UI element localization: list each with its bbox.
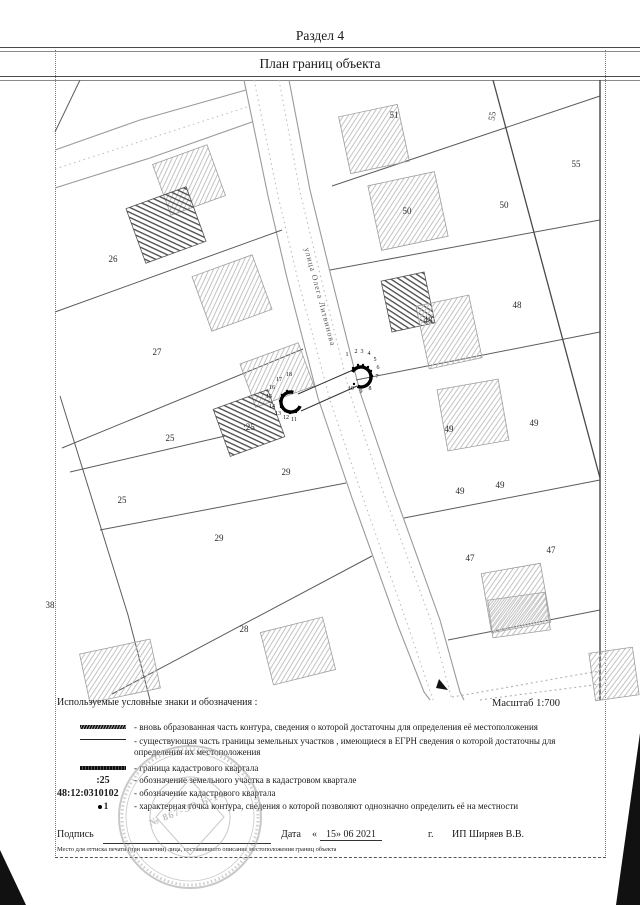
stamp-place-note: Место для оттиска печати (при наличии) л… — [57, 846, 336, 853]
quarter-boundary-line-symbol — [80, 766, 126, 770]
street-arrow — [436, 679, 448, 690]
legend-item-text: - характерная точка контура, сведения о … — [134, 801, 518, 812]
legend-item-text: - обозначение кадастрового квартала — [134, 788, 275, 799]
legend-item: - граница кадастрового квартала — [80, 763, 605, 774]
legend-item: - вновь образованная часть контура, свед… — [80, 722, 605, 733]
existing-boundary-line-symbol — [80, 739, 126, 740]
scale-label: Масштаб 1:700 — [492, 698, 560, 709]
legend-item-text: - вновь образованная часть контура, свед… — [134, 722, 538, 733]
signature-label: Подпись — [57, 829, 94, 840]
buildings — [80, 104, 640, 703]
legend-item: :25 - обозначение земельного участка в к… — [80, 775, 605, 786]
signature-line — [103, 843, 271, 844]
quarter-designation-symbol: 48:12:0310102 — [57, 788, 126, 799]
legend-item-text: - существующая часть границы земельных у… — [134, 736, 605, 758]
date-year-suffix: г. — [428, 829, 433, 840]
executor-name: ИП Ширяев В.В. — [452, 829, 524, 840]
new-contour-line-symbol — [80, 725, 126, 729]
date-value: 15» 06 2021 — [320, 829, 382, 841]
cadastral-plan-page: Раздел 4 План границ объекта — [0, 0, 640, 905]
legend-item: - существующая часть границы земельных у… — [80, 736, 605, 758]
date-quote: « — [312, 829, 317, 840]
legend-item-text: - граница кадастрового квартала — [134, 763, 258, 774]
characteristic-point-symbol: 1 — [80, 801, 126, 811]
legend-item-text: - обозначение земельного участка в кадас… — [134, 775, 356, 786]
legend-item: 48:12:0310102 - обозначение кадастрового… — [57, 788, 582, 799]
date-label: Дата — [281, 829, 301, 840]
parcel-designation-symbol: :25 — [80, 775, 126, 786]
legend-item: 1 - характерная точка контура, сведения … — [80, 801, 605, 812]
point-dot-icon — [98, 805, 102, 809]
legend-title: Используемые условные знаки и обозначени… — [57, 697, 257, 708]
